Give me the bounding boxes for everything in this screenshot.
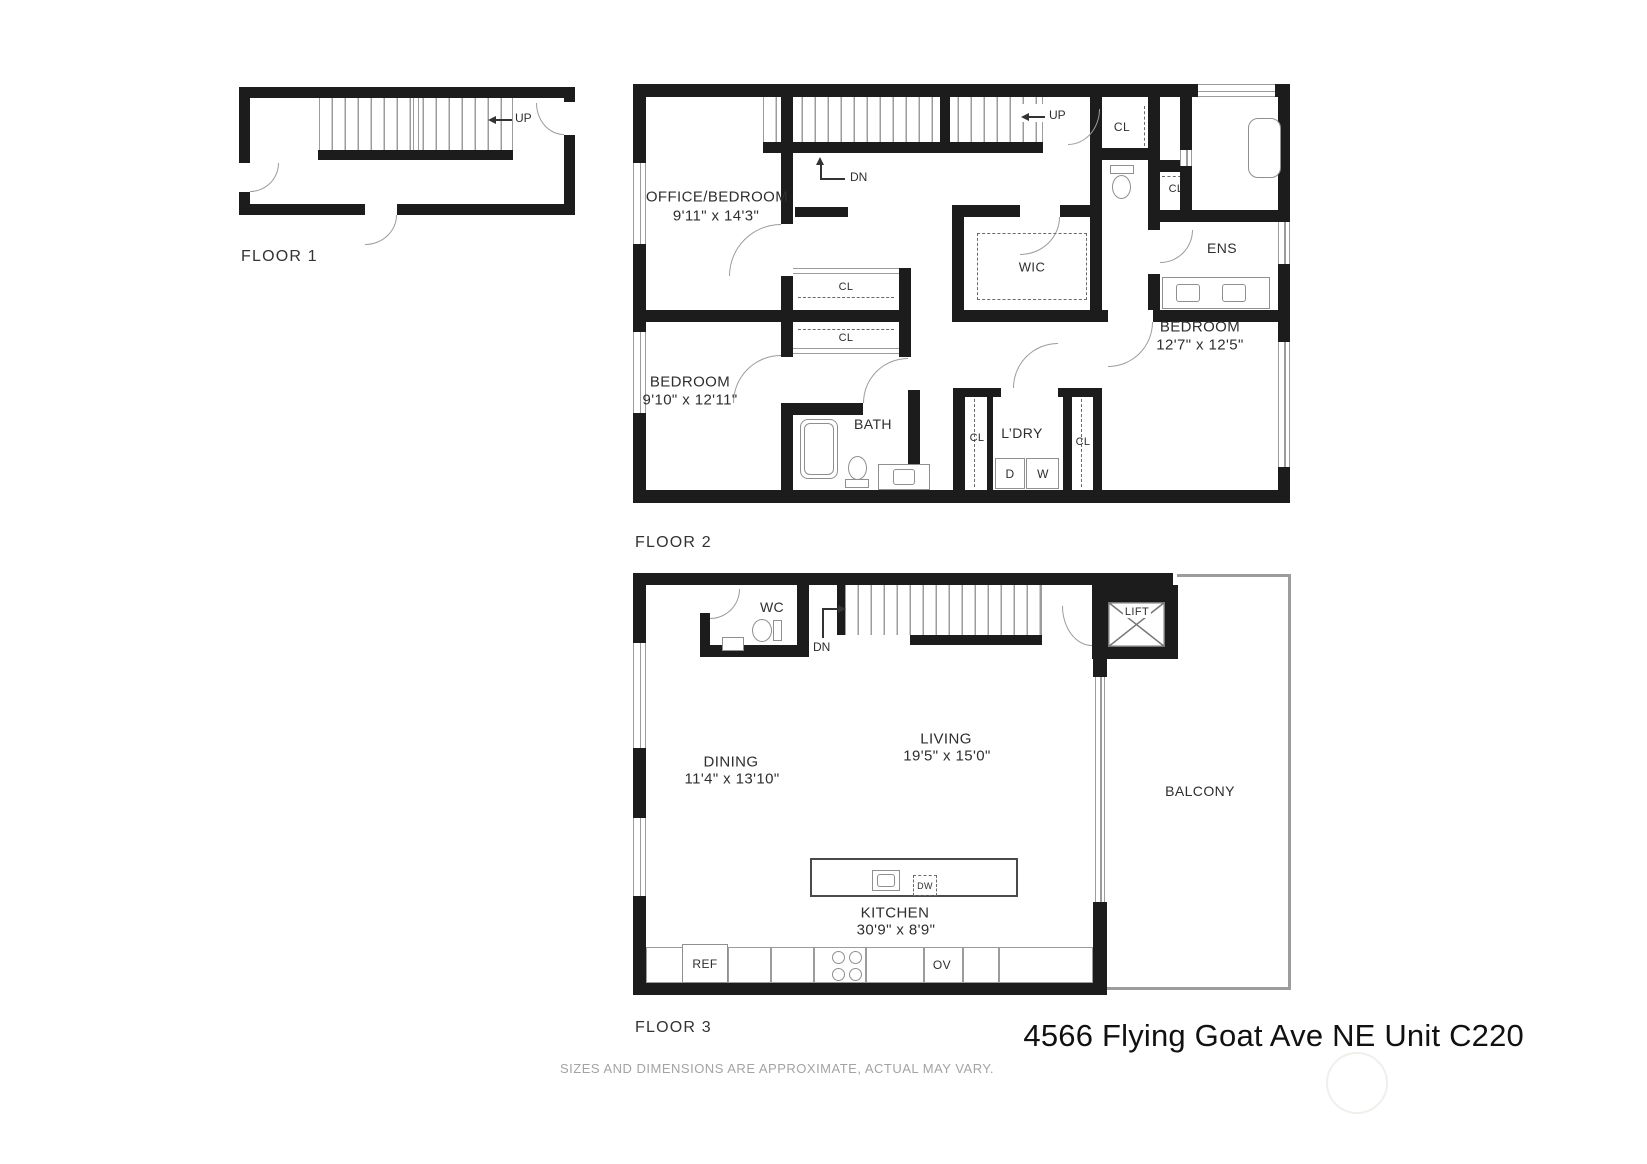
room-label-ensuite: ENS: [1207, 240, 1237, 256]
sink: [1176, 284, 1200, 302]
closet-label: CL: [970, 432, 985, 444]
room-dims-bedroom1: 9'10" x 12'11": [642, 392, 737, 409]
counter-divider: [770, 947, 772, 983]
wall: [633, 413, 646, 503]
window: [633, 643, 646, 748]
room-dims-living: 19'5" x 15'0": [903, 748, 990, 765]
wall: [1100, 148, 1148, 160]
wall: [952, 205, 964, 310]
wall: [564, 87, 575, 102]
down-arrow-line: [822, 608, 838, 610]
down-arrow-line: [821, 178, 845, 180]
wall: [633, 748, 646, 818]
up-arrow-line: [1028, 116, 1045, 118]
wall: [633, 84, 1198, 97]
bathtub-inner: [804, 423, 834, 475]
wall: [700, 613, 710, 657]
wall: [239, 87, 250, 163]
floor1-label: FLOOR 1: [241, 248, 318, 266]
wall: [987, 397, 993, 490]
counter-divider: [923, 947, 925, 983]
room-dims-bedroom2: 12'7" x 12'5": [1156, 337, 1243, 354]
wall: [633, 573, 1173, 585]
wall: [795, 207, 848, 217]
door-arc: [729, 224, 781, 276]
wall: [633, 573, 646, 643]
stair-down-label: DN: [850, 170, 867, 184]
door-arc: [1108, 322, 1153, 367]
room-dims-office: 9'11" x 14'3": [673, 208, 759, 225]
toilet-tank: [1110, 165, 1134, 174]
room-label-bedroom1: BEDROOM: [650, 374, 730, 391]
balcony-railing: [1177, 574, 1290, 577]
room-label-dining: DINING: [704, 754, 759, 771]
wall: [781, 403, 863, 415]
wall: [239, 192, 250, 215]
closet-label: CL: [1076, 436, 1091, 448]
wall: [1102, 310, 1108, 322]
balcony-railing: [1288, 574, 1291, 990]
room-dims-dining: 11'4" x 13'10": [684, 771, 779, 788]
toilet: [1112, 175, 1131, 199]
watermark-circle: [1326, 1052, 1388, 1114]
wall: [633, 84, 646, 163]
floorplan-canvas: UP FLOOR 1 UP DN: [0, 0, 1647, 1164]
wall: [239, 204, 365, 215]
door-arc: [733, 355, 781, 403]
wall: [1148, 97, 1160, 160]
door-arc: [1013, 343, 1058, 388]
stair-down-label: DN: [813, 640, 830, 654]
disclaimer-text: SIZES AND DIMENSIONS ARE APPROXIMATE, AC…: [560, 1061, 994, 1076]
closet-dash: [798, 297, 894, 298]
up-arrow-line: [495, 119, 512, 121]
closet-dash: [798, 329, 894, 330]
staircase: [763, 97, 1043, 142]
wall: [781, 322, 793, 357]
shower: [1248, 118, 1281, 178]
floor3-label: FLOOR 3: [635, 1019, 712, 1037]
door-arc: [1062, 606, 1092, 646]
wall: [239, 87, 575, 98]
wall: [952, 205, 1020, 217]
sink: [722, 637, 744, 651]
address-title: 4566 Flying Goat Ave NE Unit C220: [1022, 1018, 1524, 1054]
door-arc: [250, 163, 279, 192]
wall: [1063, 388, 1072, 490]
counter-divider: [962, 947, 964, 983]
staircase: [845, 585, 1042, 635]
room-label-bedroom2: BEDROOM: [1160, 319, 1240, 336]
closet-label: CL: [1114, 120, 1130, 134]
toilet: [752, 619, 772, 642]
window: [633, 163, 646, 244]
wall: [1148, 274, 1160, 310]
stair-divider: [940, 97, 950, 142]
closet-dash: [1144, 106, 1145, 146]
toilet: [848, 456, 867, 480]
counter-divider: [998, 947, 1000, 983]
wall: [781, 403, 793, 490]
washer-label: W: [1037, 467, 1049, 481]
wall: [633, 490, 1290, 503]
door-arc: [863, 358, 908, 403]
stair-stringer: [910, 635, 1042, 645]
window: [633, 818, 646, 896]
wall: [1278, 467, 1290, 503]
stair-stringer: [763, 142, 1043, 153]
wall: [1093, 388, 1102, 490]
sink: [1222, 284, 1246, 302]
counter-divider: [813, 947, 815, 983]
wall: [1278, 264, 1290, 342]
room-label-lift: LIFT: [1123, 606, 1151, 618]
wall: [899, 268, 911, 322]
window: [1278, 220, 1290, 264]
toilet-tank: [773, 620, 782, 641]
door-arc: [536, 103, 564, 135]
sink: [877, 874, 895, 887]
floor2-label: FLOOR 2: [635, 534, 712, 552]
stair-up-label: UP: [1047, 108, 1068, 122]
room-label-laundry: L’DRY: [1001, 425, 1042, 441]
room-dims-kitchen: 30'9" x 8'9": [857, 922, 936, 939]
oven-label: OV: [933, 958, 951, 972]
glass-wall: [1095, 677, 1105, 903]
wall: [645, 310, 911, 322]
room-label-bath: BATH: [854, 416, 892, 432]
down-arrow-line: [822, 610, 824, 638]
wall: [1093, 902, 1107, 995]
room-label-office: OFFICE/BEDROOM: [646, 189, 788, 206]
pocket-door: [1180, 150, 1192, 166]
fridge-label: REF: [692, 957, 717, 971]
counter-divider: [865, 947, 867, 983]
door-arc: [1160, 230, 1193, 263]
room-label-living: LIVING: [920, 731, 972, 748]
room-label-balcony: BALCONY: [1165, 783, 1235, 799]
balcony-railing: [1105, 987, 1290, 990]
closet-slider-door: [793, 348, 899, 354]
room-label-wc: WC: [760, 599, 784, 615]
closet-slider-door: [793, 268, 899, 274]
wall: [564, 135, 575, 215]
wall: [952, 310, 1102, 322]
closet-label: CL: [839, 281, 854, 293]
closet-label: CL: [839, 332, 854, 344]
window: [1198, 84, 1275, 97]
window: [1278, 342, 1290, 467]
toilet-tank: [845, 479, 869, 488]
wall: [633, 896, 646, 995]
wall: [633, 983, 1105, 995]
wall: [953, 388, 965, 490]
wall: [1160, 210, 1290, 222]
door-arc: [365, 215, 397, 245]
room-label-wic: WIC: [1019, 260, 1045, 275]
stair-divider: [413, 98, 419, 150]
dishwasher-label: DW: [917, 881, 933, 891]
wall: [899, 322, 911, 357]
wall: [1148, 160, 1160, 230]
sink: [893, 469, 915, 485]
room-label-kitchen: KITCHEN: [861, 905, 930, 922]
wall: [700, 645, 809, 657]
dryer-label: D: [1005, 467, 1014, 481]
wall: [397, 204, 575, 215]
door-arc: [710, 589, 740, 619]
stair-stringer: [318, 150, 513, 160]
stair-up-label: UP: [515, 111, 532, 125]
down-arrow-icon: [838, 605, 846, 613]
